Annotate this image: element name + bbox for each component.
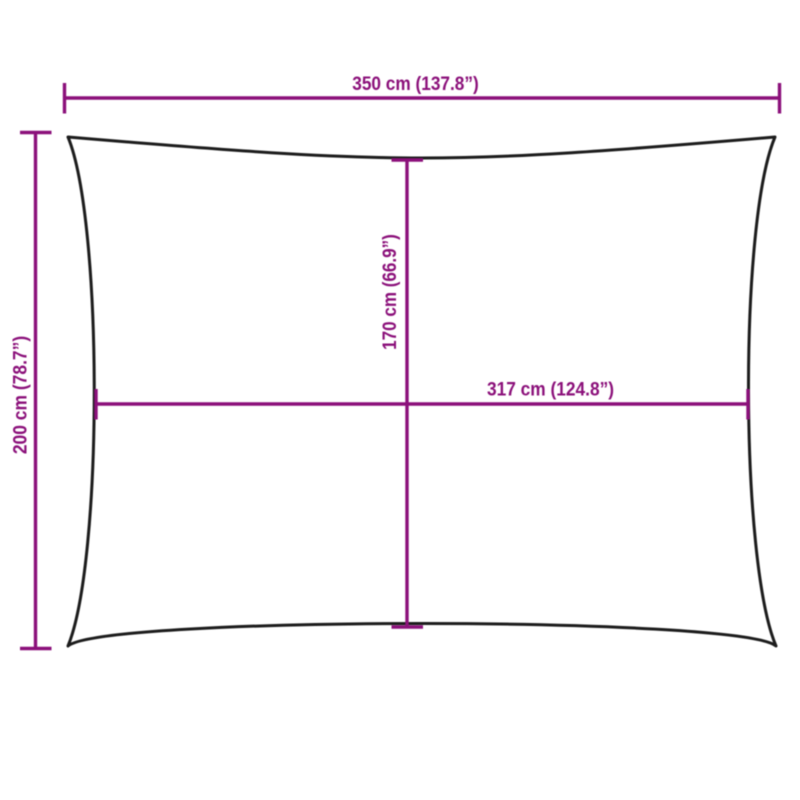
svg-text:350 cm (137.8”): 350 cm (137.8”) [352, 74, 479, 95]
svg-text:170 cm (66.9”): 170 cm (66.9”) [380, 234, 401, 350]
svg-text:200 cm (78.7”): 200 cm (78.7”) [11, 336, 32, 454]
svg-text:317 cm (124.8”): 317 cm (124.8”) [487, 380, 614, 401]
